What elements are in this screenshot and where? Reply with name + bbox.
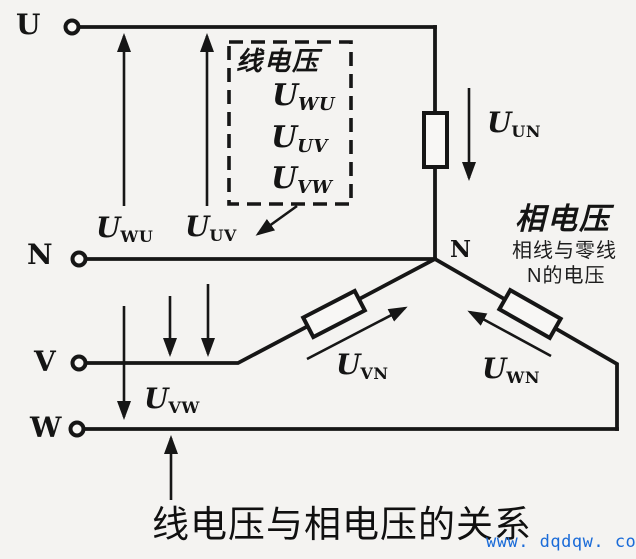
voltage-symbol: U	[487, 106, 511, 139]
phase-voltage-title: 相电压	[515, 205, 611, 235]
voltage-subscript: WU	[120, 227, 153, 246]
voltage-symbol: U	[96, 211, 120, 244]
voltage-subscript: VW	[297, 177, 332, 198]
terminal-n-circle	[73, 253, 86, 266]
terminal-u-label: U	[16, 11, 40, 39]
terminal-u-circle	[66, 21, 79, 34]
neutral-node-label: N	[450, 238, 471, 261]
voltage-symbol: U	[336, 348, 360, 381]
label-uuv: UUV	[185, 213, 237, 244]
voltage-symbol: U	[185, 210, 209, 243]
label-uun: UUN	[487, 109, 541, 140]
label-uwu: UWU	[96, 214, 153, 245]
circuit-diagram-canvas: U N V W N 线电压 UWU UUV UVW UWU UUV UVW UU…	[0, 0, 636, 559]
line-voltage-item-uuv: UUV	[271, 123, 328, 156]
label-uvn: UVN	[336, 351, 388, 382]
voltage-subscript: VW	[168, 398, 199, 417]
arrow-box-pointer	[258, 206, 297, 234]
wire-phase-v	[86, 259, 435, 363]
line-voltage-item-uvw: UVW	[271, 164, 332, 197]
line-voltage-item-uwu: UWU	[272, 81, 335, 114]
phase-voltage-note-line1: 相线与零线	[512, 241, 617, 261]
terminal-v-label: V	[34, 348, 56, 376]
voltage-subscript: WU	[298, 94, 335, 115]
terminal-v-circle	[73, 357, 86, 370]
resistor-v-phase	[303, 291, 365, 337]
resistor-u-phase	[424, 113, 447, 167]
label-uvw: UVW	[144, 385, 200, 416]
watermark: www. dqdqw. com	[486, 534, 636, 551]
voltage-symbol: U	[272, 78, 298, 113]
voltage-symbol: U	[482, 352, 506, 385]
terminal-n-label: N	[27, 241, 53, 269]
line-voltage-box-title: 线电压	[236, 48, 320, 74]
phase-voltage-note-line2: N的电压	[527, 266, 605, 286]
diagram-caption: 线电压与相电压的关系	[152, 506, 532, 543]
voltage-symbol: U	[144, 382, 168, 415]
resistor-w-phase	[499, 290, 560, 338]
terminal-w-label: W	[30, 414, 61, 442]
voltage-subscript: UV	[297, 136, 328, 157]
voltage-symbol: U	[271, 161, 297, 196]
terminal-w-circle	[71, 423, 84, 436]
voltage-symbol: U	[271, 120, 297, 155]
voltage-subscript: VN	[360, 364, 388, 383]
voltage-subscript: WN	[506, 368, 540, 387]
voltage-subscript: UV	[209, 226, 236, 245]
voltage-subscript: UN	[511, 122, 541, 141]
label-uwn: UWN	[482, 355, 540, 386]
